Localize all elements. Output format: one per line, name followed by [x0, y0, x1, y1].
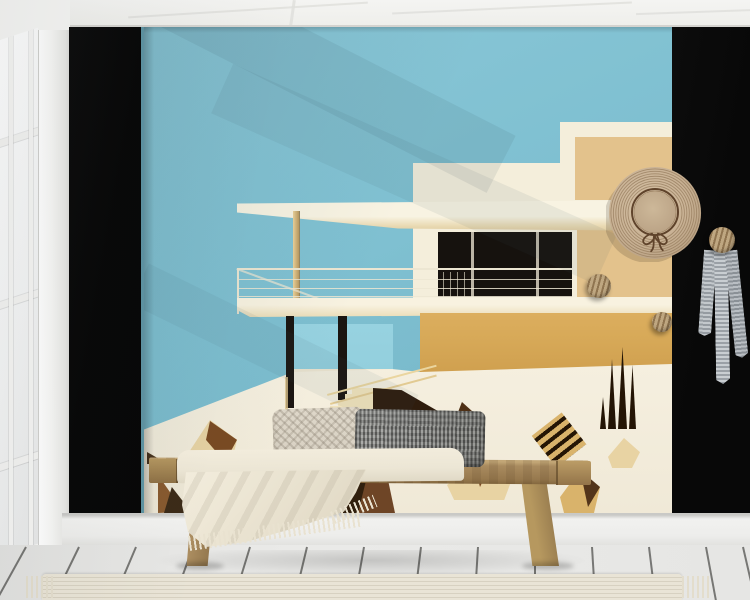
rug [42, 574, 682, 600]
wall-knob [587, 274, 611, 298]
window-jamb [38, 30, 70, 558]
mural-railing-rail [237, 268, 572, 270]
window-muntin [29, 29, 33, 546]
rug-fringe-left [26, 576, 56, 598]
bench-end-cap-right [556, 461, 591, 485]
straw-hat [606, 164, 704, 262]
hat-crown [634, 191, 676, 233]
wall-knob [652, 312, 672, 332]
mural-railing-baluster [450, 272, 451, 302]
bench-leg-shadow [176, 562, 224, 570]
mural-railing-rail [237, 296, 572, 297]
mural-railing-baluster [443, 272, 444, 302]
mural-canopy-pole [293, 211, 300, 299]
scarf-hook-knob [709, 227, 735, 253]
window-muntin [9, 36, 13, 553]
rug-fringe-right [682, 576, 712, 598]
bench-end-cap-left [149, 459, 178, 483]
mural-edge-shadow [144, 27, 154, 513]
mural-edge-shadow [144, 27, 672, 33]
mural-railing-rail [237, 279, 572, 280]
scarf [701, 246, 749, 391]
black-panel-left [69, 27, 141, 513]
bench-leg-shadow [522, 562, 574, 570]
room-scene [0, 0, 750, 600]
window [0, 28, 38, 556]
